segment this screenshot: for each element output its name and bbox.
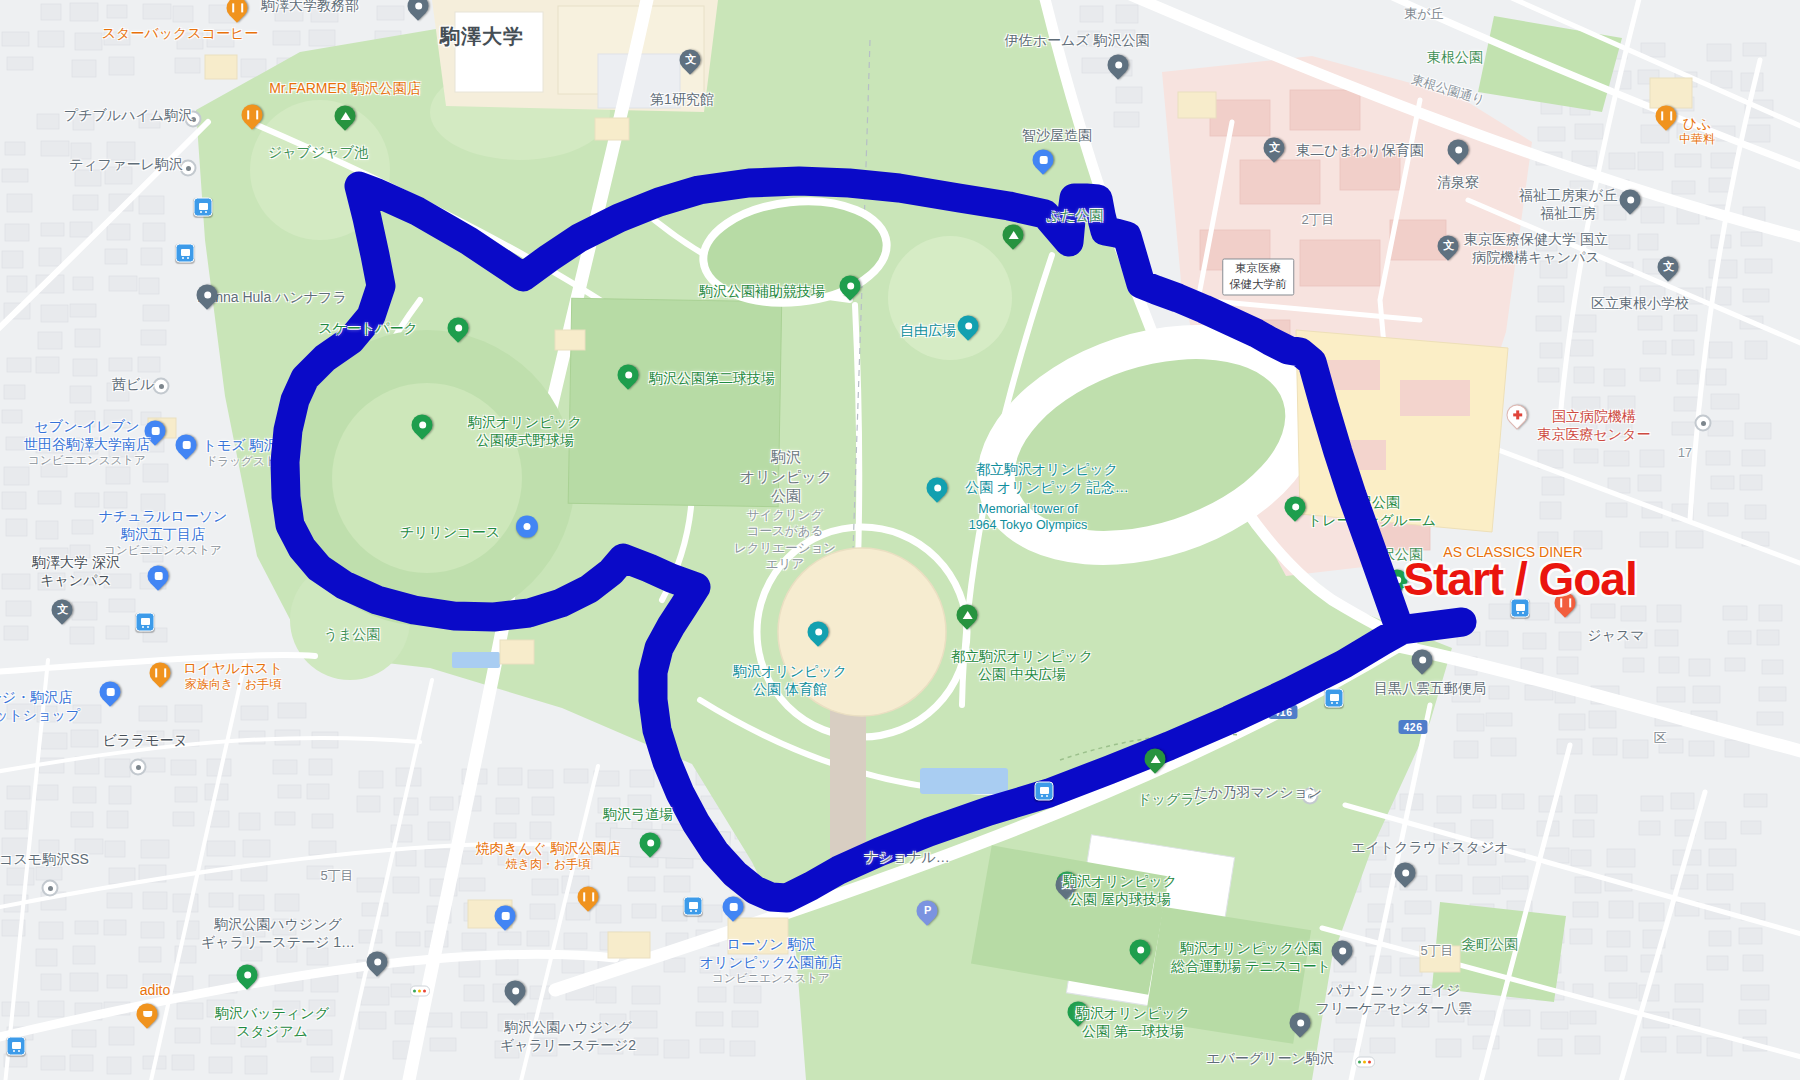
traffic-light-icon	[1358, 1060, 1361, 1063]
route-shield-426: 426	[1398, 720, 1427, 734]
label-line: 東根公園	[1427, 48, 1483, 66]
label-yakiniku-king[interactable]: 焼肉きんぐ 駒沢公園店焼き肉・お手頃	[476, 839, 621, 873]
label-line: サイクリング	[734, 507, 836, 523]
label-eight-cloud[interactable]: エイトクラウドスタジオ	[1351, 838, 1509, 856]
label-chisaya-zoen[interactable]: 智沙屋造園	[1022, 126, 1092, 144]
generic-poi-icon	[1115, 61, 1122, 68]
label-line: 駒沢	[740, 447, 832, 467]
generic-poi-icon	[1455, 146, 1462, 153]
label-gochome-west: 5丁目	[320, 868, 353, 885]
bus-stop-1-icon[interactable]	[194, 198, 213, 217]
label-ku: 区	[1654, 730, 1667, 747]
label-line: 都立駒沢オリンピック	[965, 460, 1129, 478]
generic-poi-icon	[1627, 196, 1634, 203]
label-line: 駒澤大学教務部	[261, 0, 359, 14]
label-baseball-field[interactable]: 駒沢オリンピック公園硬式野球場	[468, 413, 582, 449]
label-hanna-hula[interactable]: Hanna Hula ハンナフラ	[197, 288, 346, 306]
label-line: ナチュラルローソン	[99, 507, 228, 525]
label-line: 東京医療センター	[1538, 425, 1651, 443]
label-line: コースがある	[734, 523, 836, 539]
label-housing-stage2[interactable]: 駒沢公園ハウジングギャラリーステージ2	[500, 1018, 636, 1054]
label-line: プチブルハイム駒沢	[64, 106, 192, 124]
civic-icon	[965, 322, 972, 329]
label-jabujabu-pond[interactable]: ジャブジャブ池	[268, 143, 368, 161]
label-line: 東京医療	[1229, 261, 1287, 277]
label-kyudojo[interactable]: 駒沢弓道場	[603, 805, 673, 823]
generic-poi-icon	[204, 291, 211, 298]
poi-dot-lone-icon[interactable]	[1695, 415, 1712, 432]
label-start-goal: Start / Goal	[1403, 550, 1636, 610]
restaurant-icon	[1661, 111, 1672, 120]
label-line: 自由広場	[900, 321, 956, 339]
bus-stop-7-icon[interactable]	[1325, 689, 1344, 708]
label-line: ぶた公園	[1047, 206, 1104, 224]
label-line: オリンピック公園前店	[700, 954, 842, 972]
label-tiffare[interactable]: ティファーレ駒沢	[69, 155, 183, 173]
label-line: 公園 屋内球技場	[1063, 890, 1177, 908]
label-line: ギャラリーステージ 1…	[201, 933, 355, 951]
label-line: 総合運動場 テニスコート	[1171, 957, 1331, 975]
traffic-light-icon	[413, 989, 416, 992]
label-line: Hanna Hula ハンナフラ	[197, 288, 346, 306]
generic-poi-icon	[1402, 869, 1409, 876]
label-line: 東二ひまわり保育園	[1296, 141, 1423, 159]
park-poi-icon	[455, 324, 462, 331]
label-line: 病院機構キャンパス	[1464, 248, 1608, 266]
restaurant-icon	[232, 3, 243, 12]
cosmo-ss-pin[interactable]	[42, 880, 59, 897]
label-skatepark[interactable]: スケートパーク	[318, 319, 418, 337]
label-line: エリア	[734, 555, 836, 571]
label-line: 駒沢オリンピック	[468, 413, 582, 431]
label-line: 駒沢公園	[1308, 493, 1436, 511]
park-poi-icon	[244, 971, 251, 978]
label-line: 駒沢オリンピック	[1076, 1004, 1190, 1022]
label-line: ひふ	[1679, 114, 1715, 132]
label-subline: コンビニエンスストア	[24, 454, 150, 469]
label-line: ナショナル…	[864, 848, 950, 866]
akane-bldg-pin[interactable]	[153, 378, 170, 395]
label-fukushi-kobo[interactable]: 福祉工房東が丘福祉工房	[1519, 186, 1617, 222]
label-gymnasium[interactable]: 駒沢オリンピック公園 体育館	[733, 662, 847, 698]
label-park-desc: サイクリングコースがあるレクリエーションエリア	[734, 507, 836, 572]
bus-icon	[141, 618, 150, 625]
bus-icon	[12, 1042, 21, 1049]
label-higashigaoka: 東が丘	[1404, 6, 1443, 23]
traffic-light-2	[1355, 1057, 1375, 1068]
label-line: Mr.FARMER 駒沢公園店	[269, 79, 421, 97]
school-icon: 文	[1663, 261, 1674, 272]
label-chuo-hiroba[interactable]: 都立駒沢オリンピック公園 中央広場	[951, 647, 1093, 683]
label-line: たか乃羽マンション	[1194, 783, 1322, 801]
bus-stop-6-icon[interactable]	[1035, 782, 1054, 801]
label-line: Memorial tower of	[969, 501, 1088, 517]
bus-stop-3-icon[interactable]	[136, 613, 155, 632]
school-icon: 文	[685, 54, 696, 65]
label-lawson-park[interactable]: ローソン 駒沢オリンピック公園前店コンビニエンスストア	[700, 935, 842, 986]
label-evergreen[interactable]: エバーグリーン駒沢	[1206, 1049, 1334, 1067]
vilara-monu-pin[interactable]	[130, 759, 147, 776]
label-adito[interactable]: adito	[140, 981, 170, 999]
label-line: 清泉寮	[1437, 173, 1479, 191]
label-subline: 家族向き・お手頃	[183, 677, 283, 693]
label-line: スタジアム	[215, 1022, 329, 1040]
label-line: 駒沢弓道場	[603, 805, 673, 823]
label-line: 衾町公園	[1462, 935, 1518, 953]
park-poi-icon	[1292, 503, 1299, 510]
label-line: セブン-イレブン	[24, 417, 150, 435]
label-line: ティファーレ駒沢	[69, 155, 183, 173]
chiririn-course-pin[interactable]	[516, 516, 538, 538]
label-hifu[interactable]: ひふ中華料	[1679, 114, 1715, 148]
label-starbucks[interactable]: スターバックスコーヒー	[102, 24, 259, 42]
label-thcu-campus[interactable]: 東京医療保健大学 国立病院機構キャンパス	[1464, 230, 1608, 266]
label-line: コスモ駒沢SS	[0, 850, 89, 868]
label-natural-lawson[interactable]: ナチュラルローソン駒沢五丁目店コンビニエンスストア	[99, 507, 228, 558]
label-memorial-tower-en[interactable]: Memorial tower of1964 Tokyo Olympics	[969, 501, 1088, 534]
label-line: 1964 Tokyo Olympics	[969, 517, 1088, 533]
label-gochome-east: 5丁目	[1420, 943, 1453, 960]
label-line: 福祉工房	[1519, 204, 1617, 222]
label-line: ペットショップ	[0, 706, 80, 724]
label-line: 区	[1654, 730, 1667, 747]
label-line: 公園 第一球技場	[1076, 1022, 1190, 1040]
bus-stop-5-icon[interactable]	[684, 897, 703, 916]
label-pet-shop[interactable]: ージ・駒沢店ペットショップ	[0, 688, 80, 724]
bus-icon	[199, 203, 208, 210]
tree-icon	[962, 611, 972, 619]
label-line: 駒沢オリンピック	[733, 662, 847, 680]
label-line: Start / Goal	[1403, 550, 1636, 610]
label-line: エイトクラウドスタジオ	[1351, 838, 1509, 856]
label-komazawa-univ: 駒澤大学	[440, 23, 524, 49]
label-line: 保健大学前	[1229, 277, 1287, 293]
label-medical-center[interactable]: 国立病院機構東京医療センター	[1538, 407, 1651, 443]
label-jasma[interactable]: ジャスマ	[1587, 626, 1644, 644]
label-dai2-kyugijo[interactable]: 駒沢公園第二球技場	[649, 369, 775, 387]
shopping-bag-icon	[1039, 156, 1047, 164]
generic-poi-icon	[1297, 1019, 1304, 1026]
tree-icon	[1008, 231, 1018, 239]
label-line: 区立東根小学校	[1591, 294, 1689, 312]
label-line: 5丁目	[320, 868, 353, 885]
label-line: 国立病院機構	[1538, 407, 1651, 425]
label-line: 公園 体育館	[733, 680, 847, 698]
label-line: チリリンコース	[400, 523, 500, 541]
label-tennis-courts[interactable]: 駒沢オリンピック公園総合運動場 テニスコート	[1171, 939, 1331, 975]
label-fusuma-park[interactable]: 衾町公園	[1462, 935, 1518, 953]
park-poi-icon	[647, 839, 654, 846]
label-training-room[interactable]: 駒沢公園トレーニングルーム	[1308, 493, 1436, 529]
label-line: 5丁目	[1420, 943, 1453, 960]
bus-icon	[181, 249, 190, 256]
label-chiririn-course[interactable]: チリリンコース	[400, 523, 500, 541]
label-line: 福祉工房東が丘	[1519, 186, 1617, 204]
label-lab1[interactable]: 第1研究館	[650, 90, 714, 108]
bus-stop-2-icon[interactable]	[176, 244, 195, 263]
label-petit-pur-heim[interactable]: プチブルハイム駒沢	[64, 106, 192, 124]
label-line: 茜ビル	[112, 375, 155, 393]
label-line: ギャラリーステージ2	[500, 1036, 636, 1054]
label-line: エバーグリーン駒沢	[1206, 1049, 1334, 1067]
label-line: 公園 オリンピック 記念…	[965, 478, 1129, 496]
bus-icon	[689, 902, 698, 909]
label-isa-homes[interactable]: 伊佐ホームズ 駒沢公園	[1005, 31, 1150, 49]
label-line: トモズ 駒沢店	[203, 436, 292, 454]
label-line: ローソン 駒沢	[700, 935, 842, 953]
label-line: 駒澤大学 深沢	[32, 553, 120, 571]
label-line: ビララモーヌ	[102, 731, 188, 749]
label-subline: ドラッグストア	[203, 455, 292, 470]
label-line: ージ・駒沢店	[0, 688, 80, 706]
label-line: 目黒八雲五郵便局	[1374, 679, 1486, 697]
label-line: 第1研究館	[650, 90, 714, 108]
label-line: トレーニングルーム	[1308, 511, 1436, 529]
label-line: 公園硬式野球場	[468, 431, 582, 449]
label-vilara-monu[interactable]: ビララモーヌ	[102, 731, 188, 749]
label-subline: 中華料	[1679, 132, 1715, 148]
label-line: 伊佐ホームズ 駒沢公園	[1005, 31, 1150, 49]
shopping-bag-icon	[501, 912, 509, 920]
label-line: 焼肉きんぐ 駒沢公園店	[476, 839, 621, 857]
label-park-name: 駒沢オリンピック公園	[740, 447, 832, 506]
medical-cross-icon	[1513, 410, 1522, 419]
generic-poi-icon	[415, 2, 422, 9]
label-line: スターバックスコーヒー	[102, 24, 259, 42]
label-line: オリンピック	[740, 466, 832, 486]
label-line: ジャブジャブ池	[268, 143, 368, 161]
label-line: パナソニック エイジ	[1316, 981, 1472, 999]
restaurant-icon	[583, 892, 594, 901]
label-line: 駒沢バッティング	[215, 1004, 329, 1022]
shopping-bag-icon	[729, 903, 737, 911]
civic-icon	[815, 628, 822, 635]
restaurant-icon	[247, 110, 258, 119]
label-line: 東京医療保健大学 国立	[1464, 230, 1608, 248]
label-line: 世田谷駒澤大学南店	[24, 436, 150, 454]
park-poi-icon	[1394, 576, 1401, 583]
bus-icon	[1330, 694, 1339, 701]
label-field1[interactable]: 駒沢オリンピック公園 第一球技場	[1076, 1004, 1190, 1040]
label-line: 駒沢五丁目店	[99, 526, 228, 544]
label-line: 17	[1678, 445, 1692, 461]
label-national: ナショナル…	[864, 848, 950, 866]
label-buta-park[interactable]: ぶた公園	[1047, 206, 1104, 224]
bus-icon	[1040, 787, 1049, 794]
label-higashine-park[interactable]: 東根公園	[1427, 48, 1483, 66]
label-subline: コンビニエンスストア	[700, 972, 842, 987]
label-line: 駒沢オリンピック	[1063, 872, 1177, 890]
label-line: ロイヤルホスト	[183, 659, 283, 677]
generic-poi-icon	[1419, 656, 1426, 663]
label-akane-bldg[interactable]: 茜ビル	[112, 375, 155, 393]
shopping-bag-icon	[106, 688, 114, 696]
bicycle-icon	[524, 523, 531, 530]
label-tomods[interactable]: トモズ 駒沢店ドラッグストア	[203, 436, 292, 469]
label-higashine-es[interactable]: 区立東根小学校	[1591, 294, 1689, 312]
label-line: 東が丘	[1404, 6, 1443, 23]
label-line: 駒沢公園補助競技場	[699, 282, 825, 300]
label-uma-park: うま公園	[324, 625, 381, 643]
label-line: ジャスマ	[1587, 626, 1644, 644]
label-line: 駒澤大学	[440, 23, 524, 49]
tree-icon	[340, 112, 350, 120]
label-seven-eleven[interactable]: セブン-イレブン世田谷駒澤大学南店コンビニエンスストア	[24, 417, 150, 468]
label-line: adito	[140, 981, 170, 999]
shopping-bag-icon	[182, 441, 190, 449]
park-poi-icon	[1137, 946, 1144, 953]
label-post-office[interactable]: 目黒八雲五郵便局	[1374, 679, 1486, 697]
park-poi-icon	[847, 282, 854, 289]
label-line: 駒沢公園第二球技場	[649, 369, 775, 387]
label-line: 公園 中央広場	[951, 665, 1093, 683]
label-nichome: 2丁目	[1301, 212, 1334, 229]
label-line: 2丁目	[1301, 212, 1334, 229]
label-seisenryo[interactable]: 清泉寮	[1437, 173, 1479, 191]
label-line: うま公園	[324, 625, 381, 643]
label-house-number-17: 17	[1678, 445, 1692, 461]
route-shield-416: 416	[1268, 705, 1297, 719]
generic-poi-icon	[374, 958, 381, 965]
label-line: 公園	[740, 486, 832, 506]
generic-poi-icon	[512, 987, 519, 994]
park-poi-icon	[419, 421, 426, 428]
park-poi-icon	[625, 371, 632, 378]
generic-poi-icon	[1339, 947, 1346, 954]
label-line: 智沙屋造園	[1022, 126, 1092, 144]
label-himawari-hoikuen[interactable]: 東二ひまわり保育園	[1296, 141, 1423, 159]
shopping-bag-icon	[154, 572, 162, 580]
label-memorial-tower-jp[interactable]: 都立駒沢オリンピック公園 オリンピック 記念…	[965, 460, 1129, 496]
school-icon: 文	[57, 604, 68, 615]
restaurant-icon	[155, 668, 166, 677]
label-housing-stage1[interactable]: 駒沢公園ハウジングギャラリーステージ 1…	[201, 915, 355, 951]
traffic-light-1	[410, 986, 430, 997]
label-fukasawa-campus[interactable]: 駒澤大学 深沢キャンパス	[32, 553, 120, 589]
tree-icon	[1150, 755, 1160, 763]
label-jiyu-hiroba[interactable]: 自由広場	[900, 321, 956, 339]
label-busstop-hokendai-mae[interactable]: 東京医療保健大学前	[1222, 258, 1294, 295]
label-batting-stadium[interactable]: 駒沢バッティングスタジアム	[215, 1004, 329, 1040]
label-line: キャンパス	[32, 571, 120, 589]
label-mr-farmer[interactable]: Mr.FARMER 駒沢公園店	[269, 79, 421, 97]
school-icon: 文	[1443, 240, 1454, 251]
label-line: スケートパーク	[318, 319, 418, 337]
label-line: レクリエーション	[734, 539, 836, 555]
school-icon: 文	[1269, 142, 1280, 153]
label-line: 駒沢公園ハウジング	[500, 1018, 636, 1036]
parking-icon: P	[923, 905, 930, 916]
bus-stop-4-icon[interactable]	[7, 1037, 26, 1056]
cafe-icon	[143, 1011, 152, 1017]
label-line: 都立駒沢オリンピック	[951, 647, 1093, 665]
label-takanoha[interactable]: たか乃羽マンション	[1194, 783, 1322, 801]
map-canvas[interactable]: スターバックスコーヒーMr.FARMER 駒沢公園店プチブルハイム駒沢ティファー…	[0, 0, 1800, 1080]
label-indoor-arena[interactable]: 駒沢オリンピック公園 屋内球技場	[1063, 872, 1177, 908]
label-panasonic-yakumo[interactable]: パナソニック エイジフリーケアセンター八雲	[1316, 981, 1472, 1017]
civic-icon	[934, 484, 941, 491]
label-line: フリーケアセンター八雲	[1316, 999, 1472, 1017]
label-line: 駒沢オリンピック公園	[1171, 939, 1331, 957]
label-subline: 焼き肉・お手頃	[476, 857, 621, 873]
label-line: 駒沢公園ハウジング	[201, 915, 355, 933]
label-hojo-track[interactable]: 駒沢公園補助競技場	[699, 282, 825, 300]
shopping-bag-icon	[151, 427, 159, 435]
label-royal-host[interactable]: ロイヤルホスト家族向き・お手頃	[183, 659, 283, 693]
label-kyomubu[interactable]: 駒澤大学教務部	[261, 0, 359, 14]
label-cosmo-ss[interactable]: コスモ駒沢SS	[0, 850, 89, 868]
